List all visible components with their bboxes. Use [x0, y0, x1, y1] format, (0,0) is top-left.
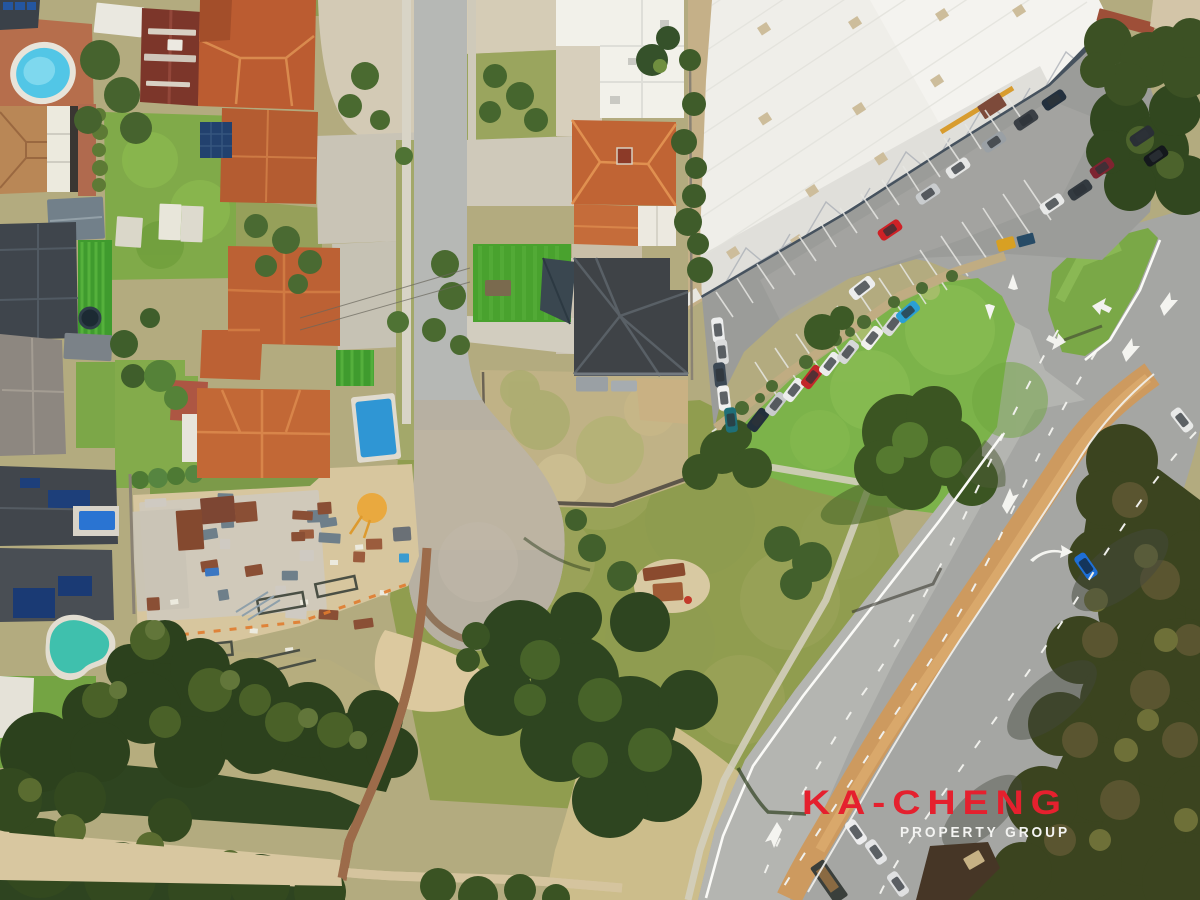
- svg-text:PROPERTY GROUP: PROPERTY GROUP: [900, 824, 1070, 841]
- svg-text:KA-CHENG: KA-CHENG: [802, 784, 1068, 822]
